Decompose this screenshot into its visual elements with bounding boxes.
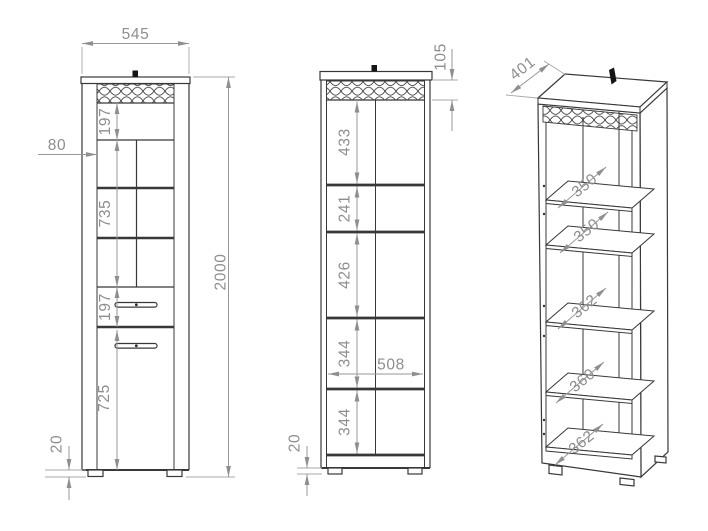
dim-door-height: 725 xyxy=(96,384,113,412)
dim-section-2: 241 xyxy=(337,195,354,223)
dim-overall-height: 2000 xyxy=(213,254,230,291)
front-lattice-strip xyxy=(97,84,174,103)
dim-section-3: 426 xyxy=(337,261,354,289)
front-top-knob xyxy=(133,71,139,78)
iso-right-side-face xyxy=(640,88,668,477)
internal-top-board xyxy=(320,72,432,81)
internal-dimensions: 105 433 241 426 344 344 508 20 xyxy=(287,43,458,496)
iso-front-face xyxy=(538,104,641,477)
iso-carcass xyxy=(538,68,668,487)
technical-drawing-canvas: 545 2000 197 735 197 725 80 20 xyxy=(0,0,708,531)
iso-shelf-pin-dots-line xyxy=(543,185,545,187)
dim-stile-width: 80 xyxy=(48,137,66,154)
dim-overall-width: 545 xyxy=(122,26,150,43)
dim-section-1: 433 xyxy=(337,128,354,156)
dim-front-foot-height: 20 xyxy=(49,435,66,453)
door-handle-center-dot xyxy=(135,344,138,347)
iso-front-left-foot xyxy=(549,465,562,475)
iso-shelf-pin-dots-line xyxy=(543,433,545,435)
dim-inner-width: 508 xyxy=(377,357,405,374)
dim-top-panel: 105 xyxy=(433,43,450,71)
iso-shelf-pin-dots-line xyxy=(543,213,545,215)
internal-lattice-strip xyxy=(327,81,425,100)
front-view: 545 2000 197 735 197 725 80 20 xyxy=(38,26,235,500)
dim-drawer-height: 197 xyxy=(97,293,114,321)
iso-shelf-pin-dots-line xyxy=(543,305,545,307)
iso-back-right-foot xyxy=(655,456,666,463)
dim-glass-section: 735 xyxy=(97,200,114,228)
isometric-view: 401 350 350 362 360 362 xyxy=(506,53,668,486)
front-left-foot xyxy=(88,470,103,477)
dim-internal-foot-height: 20 xyxy=(287,434,304,452)
drawer-handle-center-dot xyxy=(135,303,138,306)
cabinet-drawing-svg: 545 2000 197 735 197 725 80 20 xyxy=(0,0,708,531)
iso-front-right-foot xyxy=(620,478,634,486)
internal-left-foot xyxy=(328,468,342,474)
iso-dimensions-line xyxy=(506,95,537,98)
dim-depth: 401 xyxy=(507,53,539,83)
internal-right-foot xyxy=(408,468,422,474)
dim-section-4: 344 xyxy=(337,340,354,368)
internal-top-knob xyxy=(372,65,378,72)
dim-section-5: 344 xyxy=(337,408,354,436)
iso-shelf-pin-dots-line xyxy=(543,419,545,421)
dim-top-section: 197 xyxy=(97,108,114,136)
front-right-foot xyxy=(167,470,182,477)
iso-shelf-pin-dots-line xyxy=(543,335,545,337)
iso-dimensions-line xyxy=(544,61,566,75)
internal-view: 105 433 241 426 344 344 508 20 xyxy=(287,43,458,496)
front-top-board xyxy=(81,77,190,84)
